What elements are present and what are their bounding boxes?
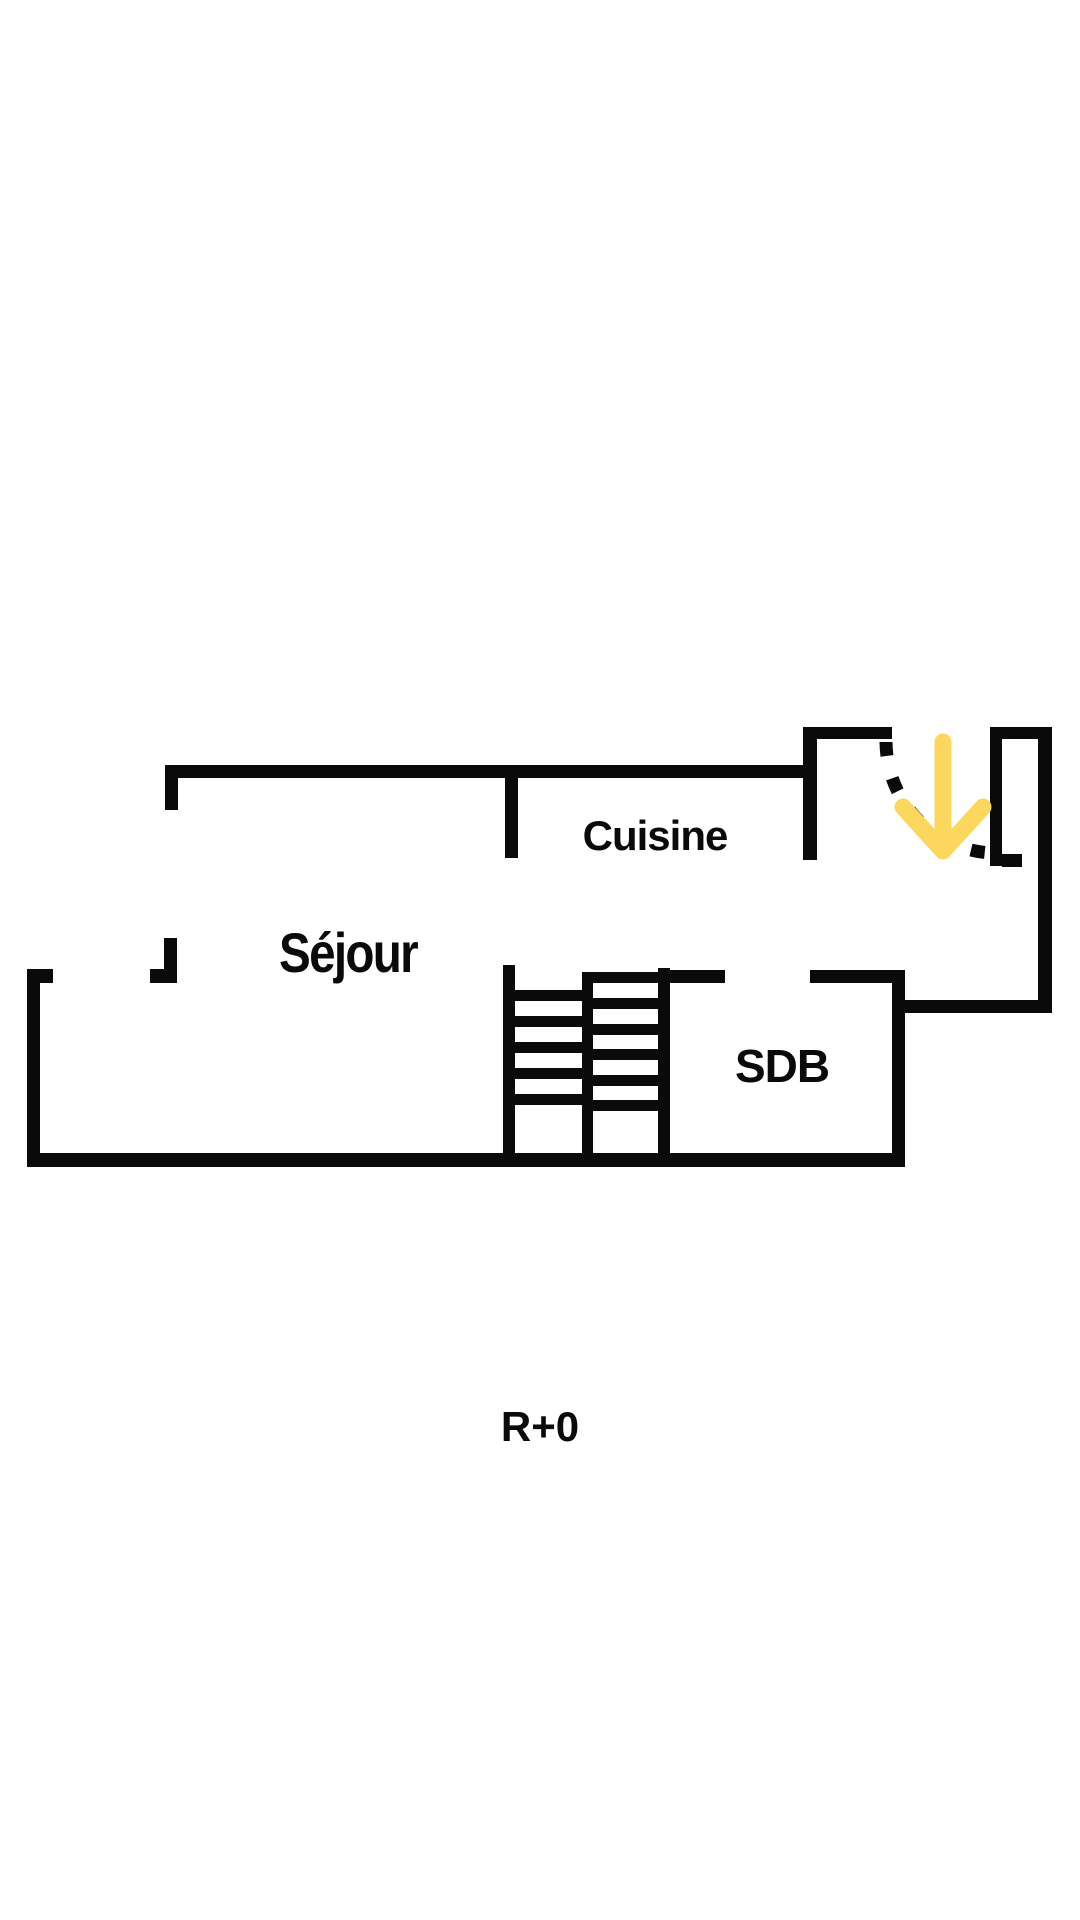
wall-sdb-top-left xyxy=(670,970,725,983)
stairs-left-rail xyxy=(503,965,515,1167)
wall-top xyxy=(165,765,817,778)
wall-sejour-jamb-foot xyxy=(150,969,164,983)
stairs-tread xyxy=(593,1100,658,1111)
wall-right xyxy=(1038,727,1052,1013)
wall-sdb-top-right xyxy=(810,970,905,983)
floor-plan-canvas: Séjour Cuisine SDB R+0 xyxy=(0,0,1080,1920)
wall-sdb-right xyxy=(892,970,905,1167)
stairs-tread xyxy=(593,998,658,1009)
stairs-tread xyxy=(593,1049,658,1060)
stairs-right-rail xyxy=(658,968,670,1167)
wall-entrance-jamb-foot xyxy=(1002,854,1022,867)
stairs-tread xyxy=(515,990,582,1001)
wall-entrance-left xyxy=(803,727,817,860)
wall-left-stub xyxy=(27,969,53,983)
room-label-sejour: Séjour xyxy=(279,925,417,981)
wall-entrance-jamb xyxy=(990,727,1002,866)
staircase xyxy=(503,965,670,1167)
stairs-tread xyxy=(593,1024,658,1035)
stairs-tread xyxy=(515,1068,582,1079)
room-label-cuisine: Cuisine xyxy=(583,815,728,857)
stairs-tread xyxy=(593,1075,658,1086)
stairs-tread xyxy=(515,1016,582,1027)
wall-bottom xyxy=(27,1153,905,1167)
down-arrow-icon xyxy=(903,742,983,851)
wall-entrance-top-left xyxy=(803,727,892,739)
room-label-sdb: SDB xyxy=(735,1043,829,1089)
stairs-middle-rail xyxy=(582,972,593,1167)
wall-divider-sejour-cuisine xyxy=(505,765,518,858)
wall-left xyxy=(27,969,40,1167)
wall-top-left-stub xyxy=(165,765,178,810)
floor-plan-drawing xyxy=(0,0,1080,1920)
wall-corridor-bottom xyxy=(898,1000,1052,1013)
stairs-tread xyxy=(515,1094,582,1105)
floor-level-label: R+0 xyxy=(501,1406,579,1448)
wall-sejour-jamb-vertical xyxy=(164,938,177,983)
stairs-tread xyxy=(593,972,658,983)
stairs-tread xyxy=(515,1042,582,1053)
